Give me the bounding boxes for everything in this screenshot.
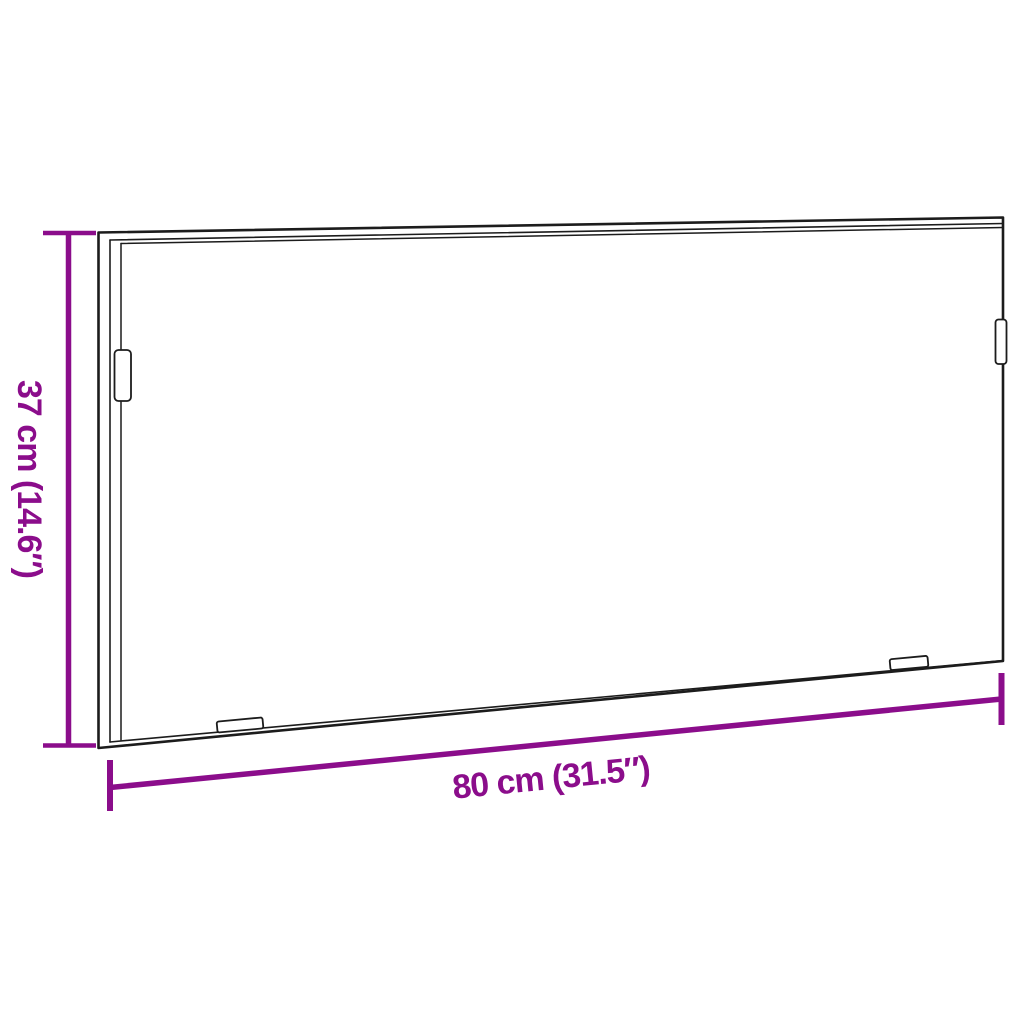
mounting-bracket-right xyxy=(996,320,1007,365)
mounting-brackets xyxy=(115,320,1007,733)
height-dimension-line xyxy=(43,233,96,746)
frame-outer-silhouette xyxy=(99,218,1004,749)
frame-outline xyxy=(99,218,1004,749)
mounting-bracket-left xyxy=(115,350,132,401)
product-dimension-diagram: 37 cm (14.6″) 80 cm (31.5″) xyxy=(0,0,1024,1024)
mirror-frame-drawing xyxy=(0,0,1024,1024)
mounting-bracket-bottom-right xyxy=(890,656,929,670)
height-dimension-label: 37 cm (14.6″) xyxy=(12,380,46,578)
mounting-bracket-bottom-left xyxy=(217,717,264,732)
